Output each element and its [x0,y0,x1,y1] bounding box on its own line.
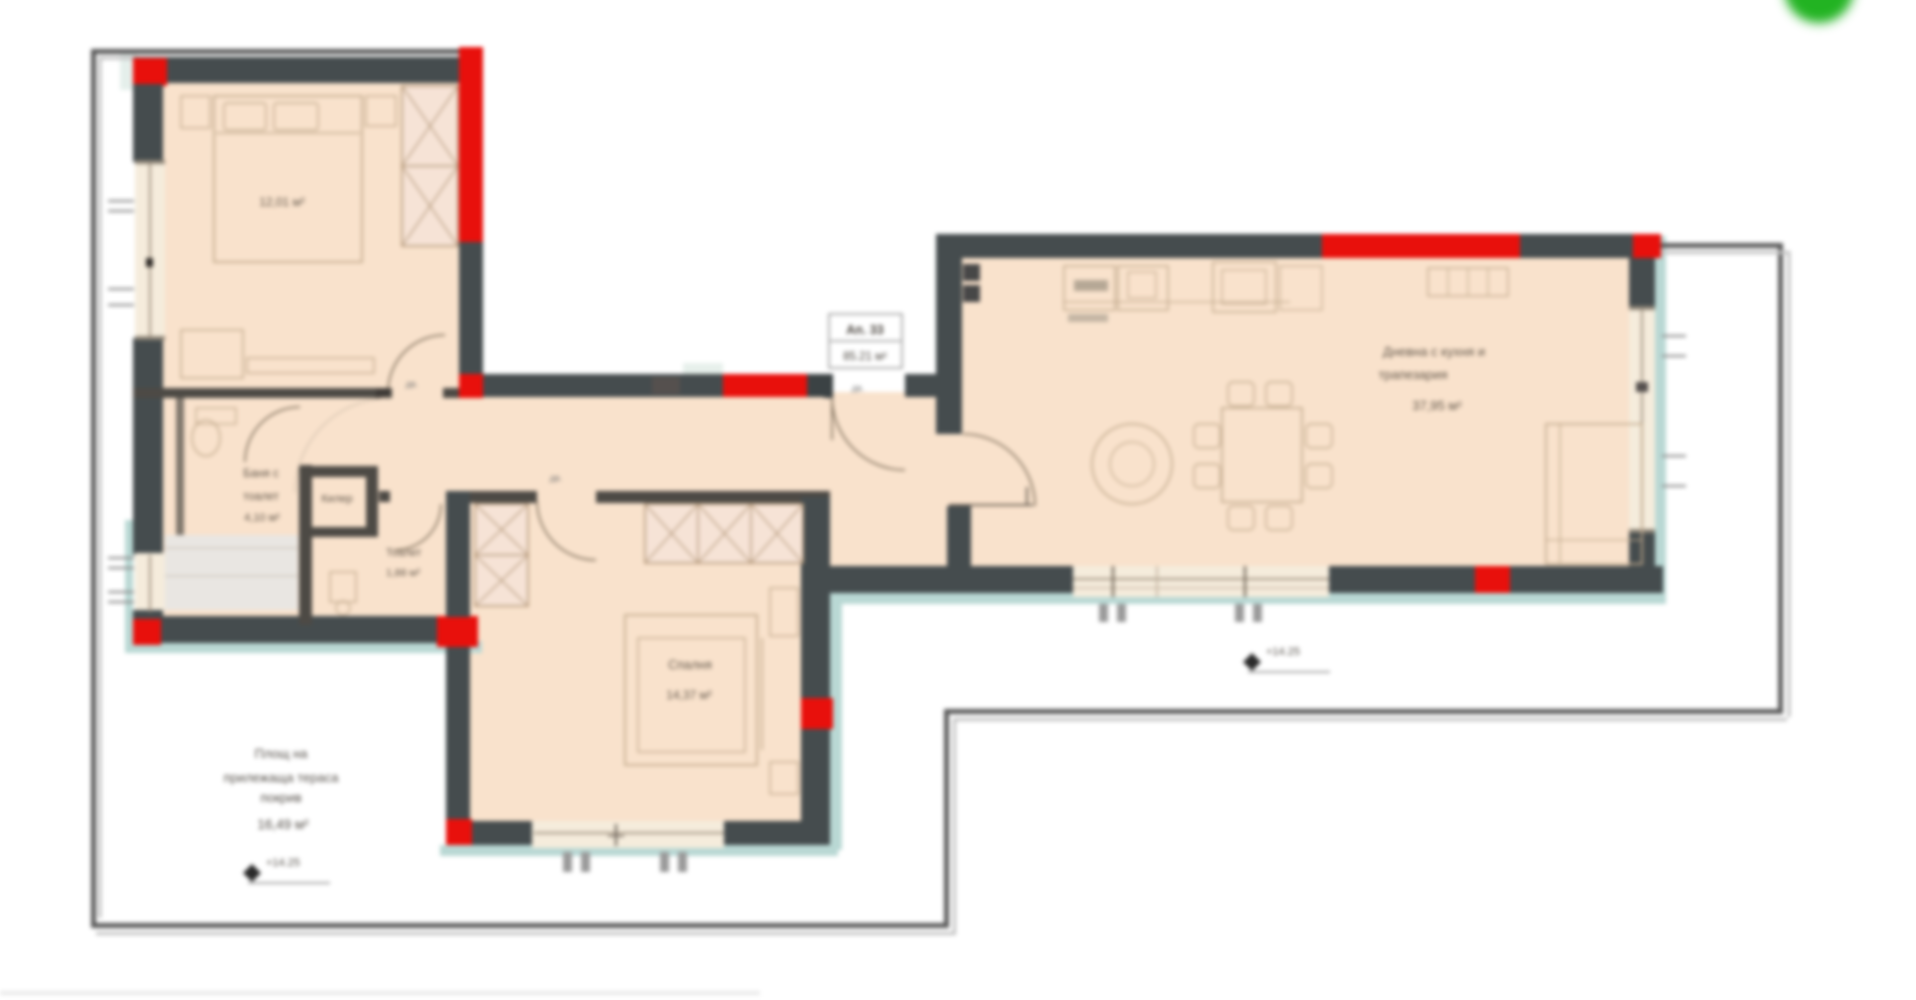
svg-text:37,95 м²: 37,95 м² [1412,398,1462,413]
svg-text:Площ на: Площ на [254,746,308,761]
svg-text:Баня с: Баня с [243,468,279,480]
svg-text:14,37 м²: 14,37 м² [666,688,712,702]
svg-text:85.21 м²: 85.21 м² [843,351,887,363]
svg-text:прилежаща тераса: прилежаща тераса [224,770,340,785]
svg-text:1,88 м²: 1,88 м² [386,567,421,579]
svg-text:12,01 м²: 12,01 м² [259,195,305,209]
svg-text:+14.25: +14.25 [266,857,300,869]
svg-text:покрив: покрив [260,790,301,805]
svg-text:дв.: дв. [550,473,563,483]
svg-text:+14.25: +14.25 [1266,646,1300,658]
svg-text:тоалет: тоалет [243,491,280,503]
svg-text:дв.: дв. [852,383,865,393]
svg-text:Спалня: Спалня [668,658,712,672]
svg-text:4,10 м²: 4,10 м² [244,512,280,524]
svg-text:Тоалет: Тоалет [386,547,421,559]
svg-text:Дневна с кухня и: Дневна с кухня и [1383,344,1485,359]
svg-text:трапезария: трапезария [1378,367,1447,382]
svg-text:16,49 м²: 16,49 м² [257,817,309,832]
svg-text:Килер: Килер [321,493,352,505]
svg-text:дв.: дв. [406,379,419,389]
svg-text:Ап. 33: Ап. 33 [846,323,883,337]
